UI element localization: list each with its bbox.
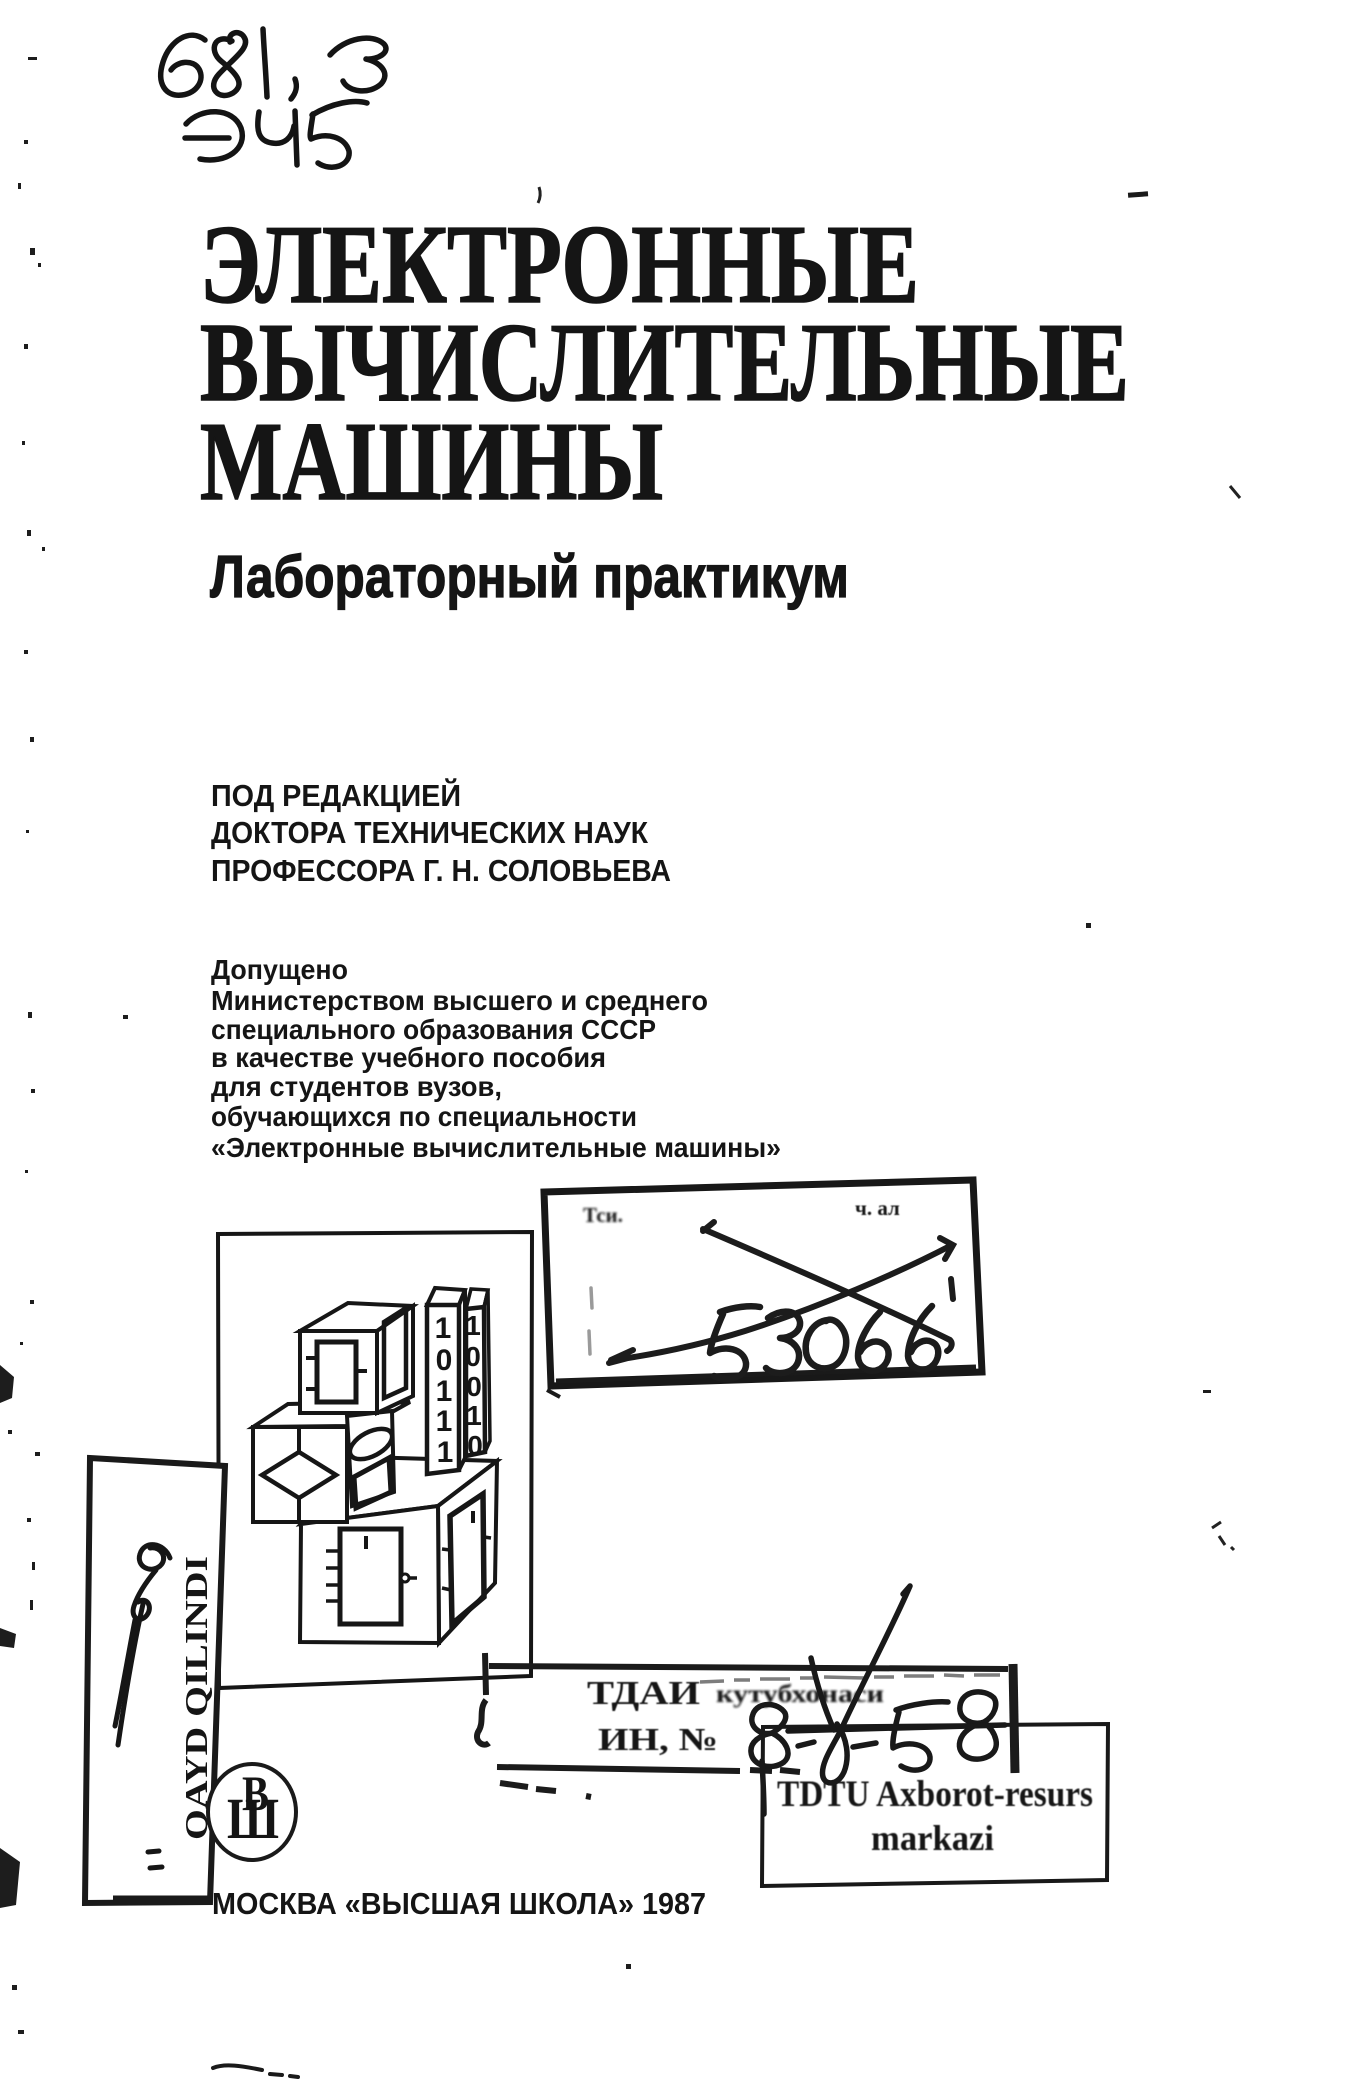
svg-text:для студентов вузов,: для студентов вузов, xyxy=(211,1071,502,1102)
svg-text:1: 1 xyxy=(436,1375,453,1408)
svg-text:1: 1 xyxy=(437,1436,454,1469)
svg-text:0: 0 xyxy=(465,1341,481,1372)
svg-text:ДОКТОРА ТЕХНИЧЕСКИХ НАУК: ДОКТОРА ТЕХНИЧЕСКИХ НАУК xyxy=(211,815,648,850)
svg-text:В: В xyxy=(242,1765,269,1821)
svg-text:ПРОФЕССОРА Г. Н. СОЛОВЬЕВА: ПРОФЕССОРА Г. Н. СОЛОВЬЕВА xyxy=(211,853,671,888)
svg-text:в качестве учебного пособия: в качестве учебного пособия xyxy=(211,1042,606,1073)
svg-text:Лабораторный практикум: Лабораторный практикум xyxy=(210,544,849,610)
svg-text:ТДАИ: ТДАИ xyxy=(587,1675,700,1712)
svg-text:ПОД РЕДАКЦИЕЙ: ПОД РЕДАКЦИЕЙ xyxy=(211,777,461,813)
svg-text:markazi: markazi xyxy=(871,1818,994,1858)
svg-text:«Электронные вычислительные ма: «Электронные вычислительные машины» xyxy=(211,1132,781,1163)
svg-text:1: 1 xyxy=(465,1310,481,1341)
svg-text:0: 0 xyxy=(467,1430,483,1461)
svg-text:ч. ал: ч. ал xyxy=(855,1196,900,1220)
svg-text:ИН, №: ИН, № xyxy=(598,1721,718,1757)
svg-text:специального образования СССР: специального образования СССР xyxy=(211,1014,656,1045)
svg-text:Министерством высшего и средне: Министерством высшего и среднего xyxy=(211,985,708,1016)
svg-text:МОСКВА «ВЫСШАЯ ШКОЛА» 1987: МОСКВА «ВЫСШАЯ ШКОЛА» 1987 xyxy=(212,1886,706,1921)
svg-text:1: 1 xyxy=(466,1400,482,1431)
svg-text:Допущено: Допущено xyxy=(211,954,348,985)
svg-text:1: 1 xyxy=(435,1312,452,1345)
svg-text:0: 0 xyxy=(436,1344,453,1377)
svg-text:1: 1 xyxy=(436,1405,453,1438)
svg-text:0: 0 xyxy=(466,1371,482,1402)
svg-text:обучающихся по специальности: обучающихся по специальности xyxy=(211,1101,637,1132)
svg-text:Тси.: Тси. xyxy=(583,1203,623,1227)
svg-text:МАШИНЫ: МАШИНЫ xyxy=(200,400,663,524)
